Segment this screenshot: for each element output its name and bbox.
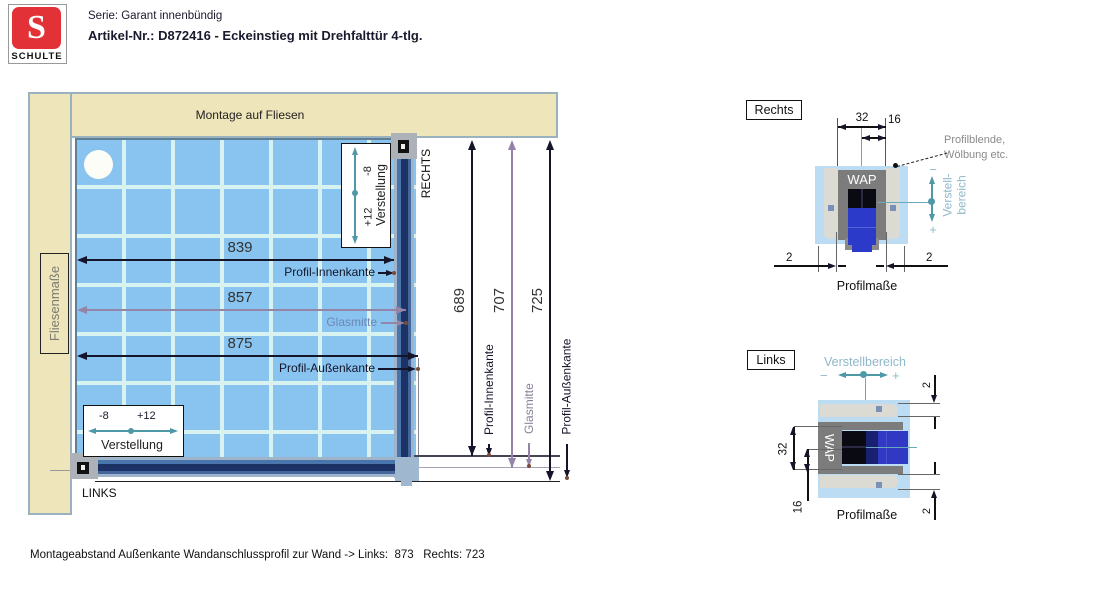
- aussenkante-ref-label: Profil-Außenkante: [559, 333, 575, 441]
- ref-line-glasmitte: [405, 467, 560, 468]
- wall-top-label: Montage auf Fliesen: [185, 108, 315, 124]
- blende-band-left: [824, 168, 838, 239]
- dim-707-arrow-up: [508, 140, 516, 150]
- links-caption: Profilmaße: [828, 508, 906, 522]
- verstell-plus: +: [926, 223, 940, 236]
- dim-16-value: 16: [888, 114, 901, 126]
- schulte-logo: S SCHULTE: [8, 4, 67, 64]
- verstell-minus: −: [820, 368, 828, 383]
- blende-band-top: [820, 404, 898, 417]
- profile-bottom: [75, 457, 414, 477]
- dim-725-value: 725: [529, 270, 546, 330]
- dim-725-arrow-up: [546, 140, 554, 150]
- verstellbereich-label-2: bereich: [955, 166, 969, 224]
- dim-2-right-value: 2: [926, 252, 932, 264]
- dim-875-arrow-left: [77, 352, 87, 360]
- dim-707-arrow-down: [508, 458, 516, 468]
- brand-name: SCHULTE: [9, 50, 65, 63]
- dim-857-arrow-left: [77, 306, 87, 314]
- dim-689-line: [471, 146, 473, 456]
- adjust-box-right: -8 +12 Verstellung: [341, 143, 391, 248]
- wall-corner-patch: [32, 96, 66, 132]
- innenkante-ref-label: Profil-Innenkante: [481, 338, 497, 442]
- blende-note-line1: Profilblende,: [944, 134, 1005, 146]
- dim-875-arrow-right: [408, 352, 418, 360]
- drawing-sheet: S SCHULTE Serie: Garant innenbündig Arti…: [0, 0, 1116, 592]
- verstell-minus: −: [926, 163, 940, 175]
- dim-32-value: 32: [776, 434, 791, 464]
- left-side-label: LINKS: [82, 487, 117, 500]
- verstell-plus: +: [892, 368, 900, 383]
- dim-725-arrow-down: [546, 471, 554, 481]
- dim-839-arrow-left: [77, 256, 87, 264]
- connector-top-icon: [398, 140, 409, 153]
- wap-label: WAP: [820, 432, 838, 464]
- dim-689-arrow-up: [468, 140, 476, 150]
- glass-dark: [848, 189, 876, 208]
- wall-tick: [50, 470, 72, 471]
- dim-725-line: [549, 146, 551, 476]
- dim-839-line: [79, 259, 394, 261]
- detail-links-title: Links: [747, 350, 795, 370]
- verstellbereich-label: Verstellbereich: [822, 355, 908, 368]
- dim-875-value: 875: [190, 335, 290, 351]
- profile-corner-tab: [401, 481, 412, 486]
- dim-2-top-value: 2: [921, 376, 934, 394]
- dim-689-arrow-down: [468, 446, 476, 456]
- dim-2-right-line: [890, 265, 948, 267]
- tile-size-box: Fliesenmaße: [40, 253, 69, 354]
- series-label: Serie: Garant innenbündig: [88, 10, 222, 23]
- glasmitte-label: Glasmitte: [295, 316, 377, 329]
- dim-707-value: 707: [491, 270, 508, 330]
- innenkante-label: Profil-Innenkante: [253, 266, 375, 279]
- adjust-box-bottom: -8 +12 Verstellung: [83, 405, 184, 457]
- aussenkante-label: Profil-Außenkante: [251, 362, 375, 375]
- wap-profile-arm-top: [842, 422, 903, 430]
- dim-839-value: 839: [190, 239, 290, 255]
- profile-corner-cap: [395, 457, 419, 481]
- dim-857-line: [79, 309, 406, 311]
- dim-2-left-value: 2: [786, 252, 792, 264]
- ref-line-aussenkante: [95, 481, 560, 482]
- dim-857-value: 857: [190, 289, 290, 305]
- dim-32-value: 32: [840, 111, 884, 124]
- dim-839-arrow-right: [384, 256, 394, 264]
- dim-16-value: 16: [791, 494, 806, 520]
- blende-band-right: [886, 168, 900, 239]
- glasmitte-ref-label: Glasmitte: [521, 378, 537, 440]
- connector-left-icon: [77, 462, 89, 474]
- blende-note-line2: Wölbung etc.: [944, 149, 1008, 161]
- dim-707-line: [511, 146, 513, 468]
- dim-2-left-line: [774, 265, 832, 267]
- wap-label: WAP: [840, 172, 884, 187]
- verstellbereich-label-1: Verstell-: [941, 166, 955, 224]
- glass-dark: [842, 431, 866, 464]
- shower-drain: [84, 150, 113, 179]
- wap-profile-arm-bottom: [842, 466, 903, 474]
- dim-689-value: 689: [451, 270, 468, 330]
- dim-2-bottom-line: [934, 497, 936, 520]
- detail-rechts-title: Rechts: [746, 100, 802, 120]
- dim-2-top-line: [934, 375, 936, 396]
- dim-875-line: [79, 355, 418, 357]
- footer-note: Montageabstand Außenkante Wandanschlussp…: [30, 549, 485, 561]
- schulte-logo-icon: S: [12, 7, 61, 49]
- blende-band-bottom: [820, 475, 898, 488]
- adjust-label: Verstellung: [86, 437, 178, 452]
- dim-857-arrow-right: [396, 306, 406, 314]
- adjust-arrow-right-icon: [170, 428, 178, 434]
- adjust-minus-value: -8: [99, 410, 109, 422]
- adjust-plus-value: +12: [137, 410, 156, 422]
- rechts-caption: Profilmaße: [828, 279, 906, 293]
- dim-2-bottom-value: 2: [921, 502, 934, 520]
- article-number-label: Artikel-Nr.: D872416 - Eckeinstieg mit D…: [88, 29, 422, 43]
- right-side-label: RECHTS: [417, 142, 437, 206]
- adjust-label: Verstellung: [373, 148, 388, 242]
- adjust-arrow-down-icon: [352, 236, 358, 244]
